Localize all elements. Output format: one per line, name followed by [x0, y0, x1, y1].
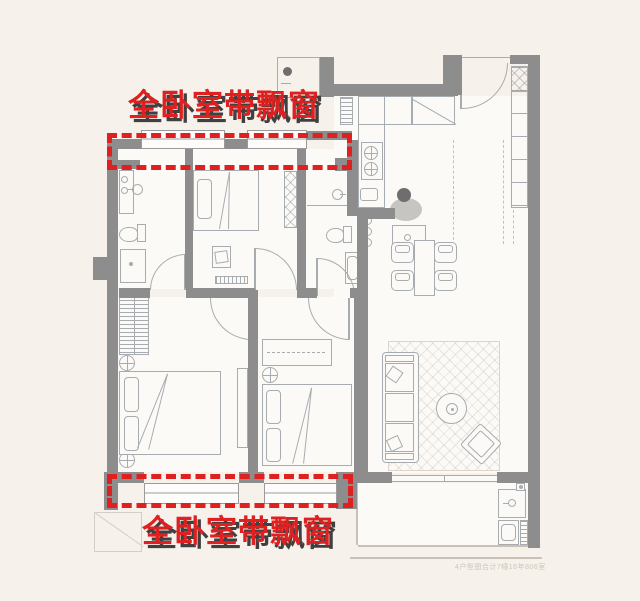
faucet-icon: [508, 499, 516, 507]
wall-master-bedroom3: [248, 290, 258, 472]
wall-bath2-right-c: [357, 215, 368, 298]
annotation-top: 全卧室带飘窗: [128, 90, 320, 121]
nightstand-icon: [262, 367, 278, 383]
wall-left-step: [93, 257, 107, 280]
duct-icon: [340, 97, 353, 125]
sofa-armrest: [385, 453, 414, 460]
floor-plan: 全卧室带飘窗 全卧室带飘窗 4户型图合计7幢16年806室: [0, 0, 640, 601]
wall-hall-s1: [119, 288, 150, 298]
drying-rack-icon: [520, 520, 528, 545]
faucet-icon: [132, 184, 143, 195]
sliding-door-icon: [392, 475, 498, 482]
kitchen-sink-icon: [360, 188, 378, 201]
ceiling-break-line: [453, 140, 454, 240]
drain-dot: [519, 485, 523, 489]
wall-kitchen-bottom: [357, 208, 395, 219]
pillow-icon: [197, 179, 212, 219]
person-icon: [397, 188, 411, 202]
sofa-cushion: [385, 393, 414, 422]
shower-icon: [120, 249, 146, 283]
toilet-bowl-icon: [326, 228, 344, 243]
basin-bowl-icon: [121, 176, 128, 183]
burner-icon: [364, 146, 378, 160]
heater-mark: [281, 83, 291, 84]
highlight-box-top: [107, 133, 352, 170]
balcony-rail-line: [358, 545, 530, 547]
dining-chair-icon: [391, 242, 414, 263]
wardrobe-icon: [284, 171, 297, 228]
vanity-counter-line: [307, 205, 351, 206]
dresser-detail: [267, 352, 325, 353]
pillow-icon: [266, 428, 281, 462]
entry-threshold: [458, 57, 513, 58]
balcony-outer-line: [350, 557, 542, 559]
dining-chair-icon: [434, 270, 457, 291]
shoe-cabinet-icon: [511, 66, 528, 92]
dining-chair-icon: [434, 242, 457, 263]
watermark-text: 4户型图合计7幢16年806室: [455, 562, 546, 572]
washer-drum-icon: [501, 524, 516, 541]
closet-projection-line: [513, 210, 514, 244]
dining-table-icon: [414, 240, 435, 296]
pillow-icon: [266, 390, 281, 424]
wall-hall-s2: [186, 288, 255, 298]
wardrobe-divider: [134, 295, 135, 355]
highlight-box-bottom: [107, 474, 353, 508]
toilet-bowl-icon: [119, 227, 138, 242]
shower-drain-icon: [129, 262, 133, 266]
pillow-icon: [124, 377, 139, 412]
dining-chair-icon: [391, 270, 414, 291]
kitchen-upper-cabinet: [358, 96, 412, 125]
wall-kitchen-stub: [320, 57, 334, 97]
cup-icon: [404, 234, 411, 241]
table-decor-dot: [451, 408, 454, 411]
wall-hall-s3: [297, 288, 317, 298]
wall-bedroom3-right: [354, 290, 368, 472]
wall-entry-pier: [443, 55, 462, 95]
sliding-door-split: [444, 475, 445, 482]
faucet-stem: [340, 194, 346, 195]
ceiling-break-line: [503, 140, 504, 244]
heater-dial-icon: [283, 67, 292, 76]
annotation-bottom: 全卧室带飘窗: [142, 516, 334, 547]
toilet-tank-icon: [343, 226, 352, 243]
burner-icon: [364, 162, 378, 176]
sofa-armrest: [385, 355, 414, 362]
wall-balcony-left: [354, 472, 392, 483]
tv-icon: [214, 250, 229, 264]
wall-balcony-right: [497, 472, 530, 483]
faucet-stem: [127, 189, 133, 190]
faucet-stem: [503, 503, 509, 504]
side-cabinet-icon: [237, 368, 248, 448]
radiator-icon: [215, 276, 248, 284]
toilet-tank-icon: [137, 224, 146, 242]
nightstand-icon: [119, 355, 135, 371]
wall-left: [107, 139, 118, 490]
wall-kitchen-top: [334, 84, 458, 96]
